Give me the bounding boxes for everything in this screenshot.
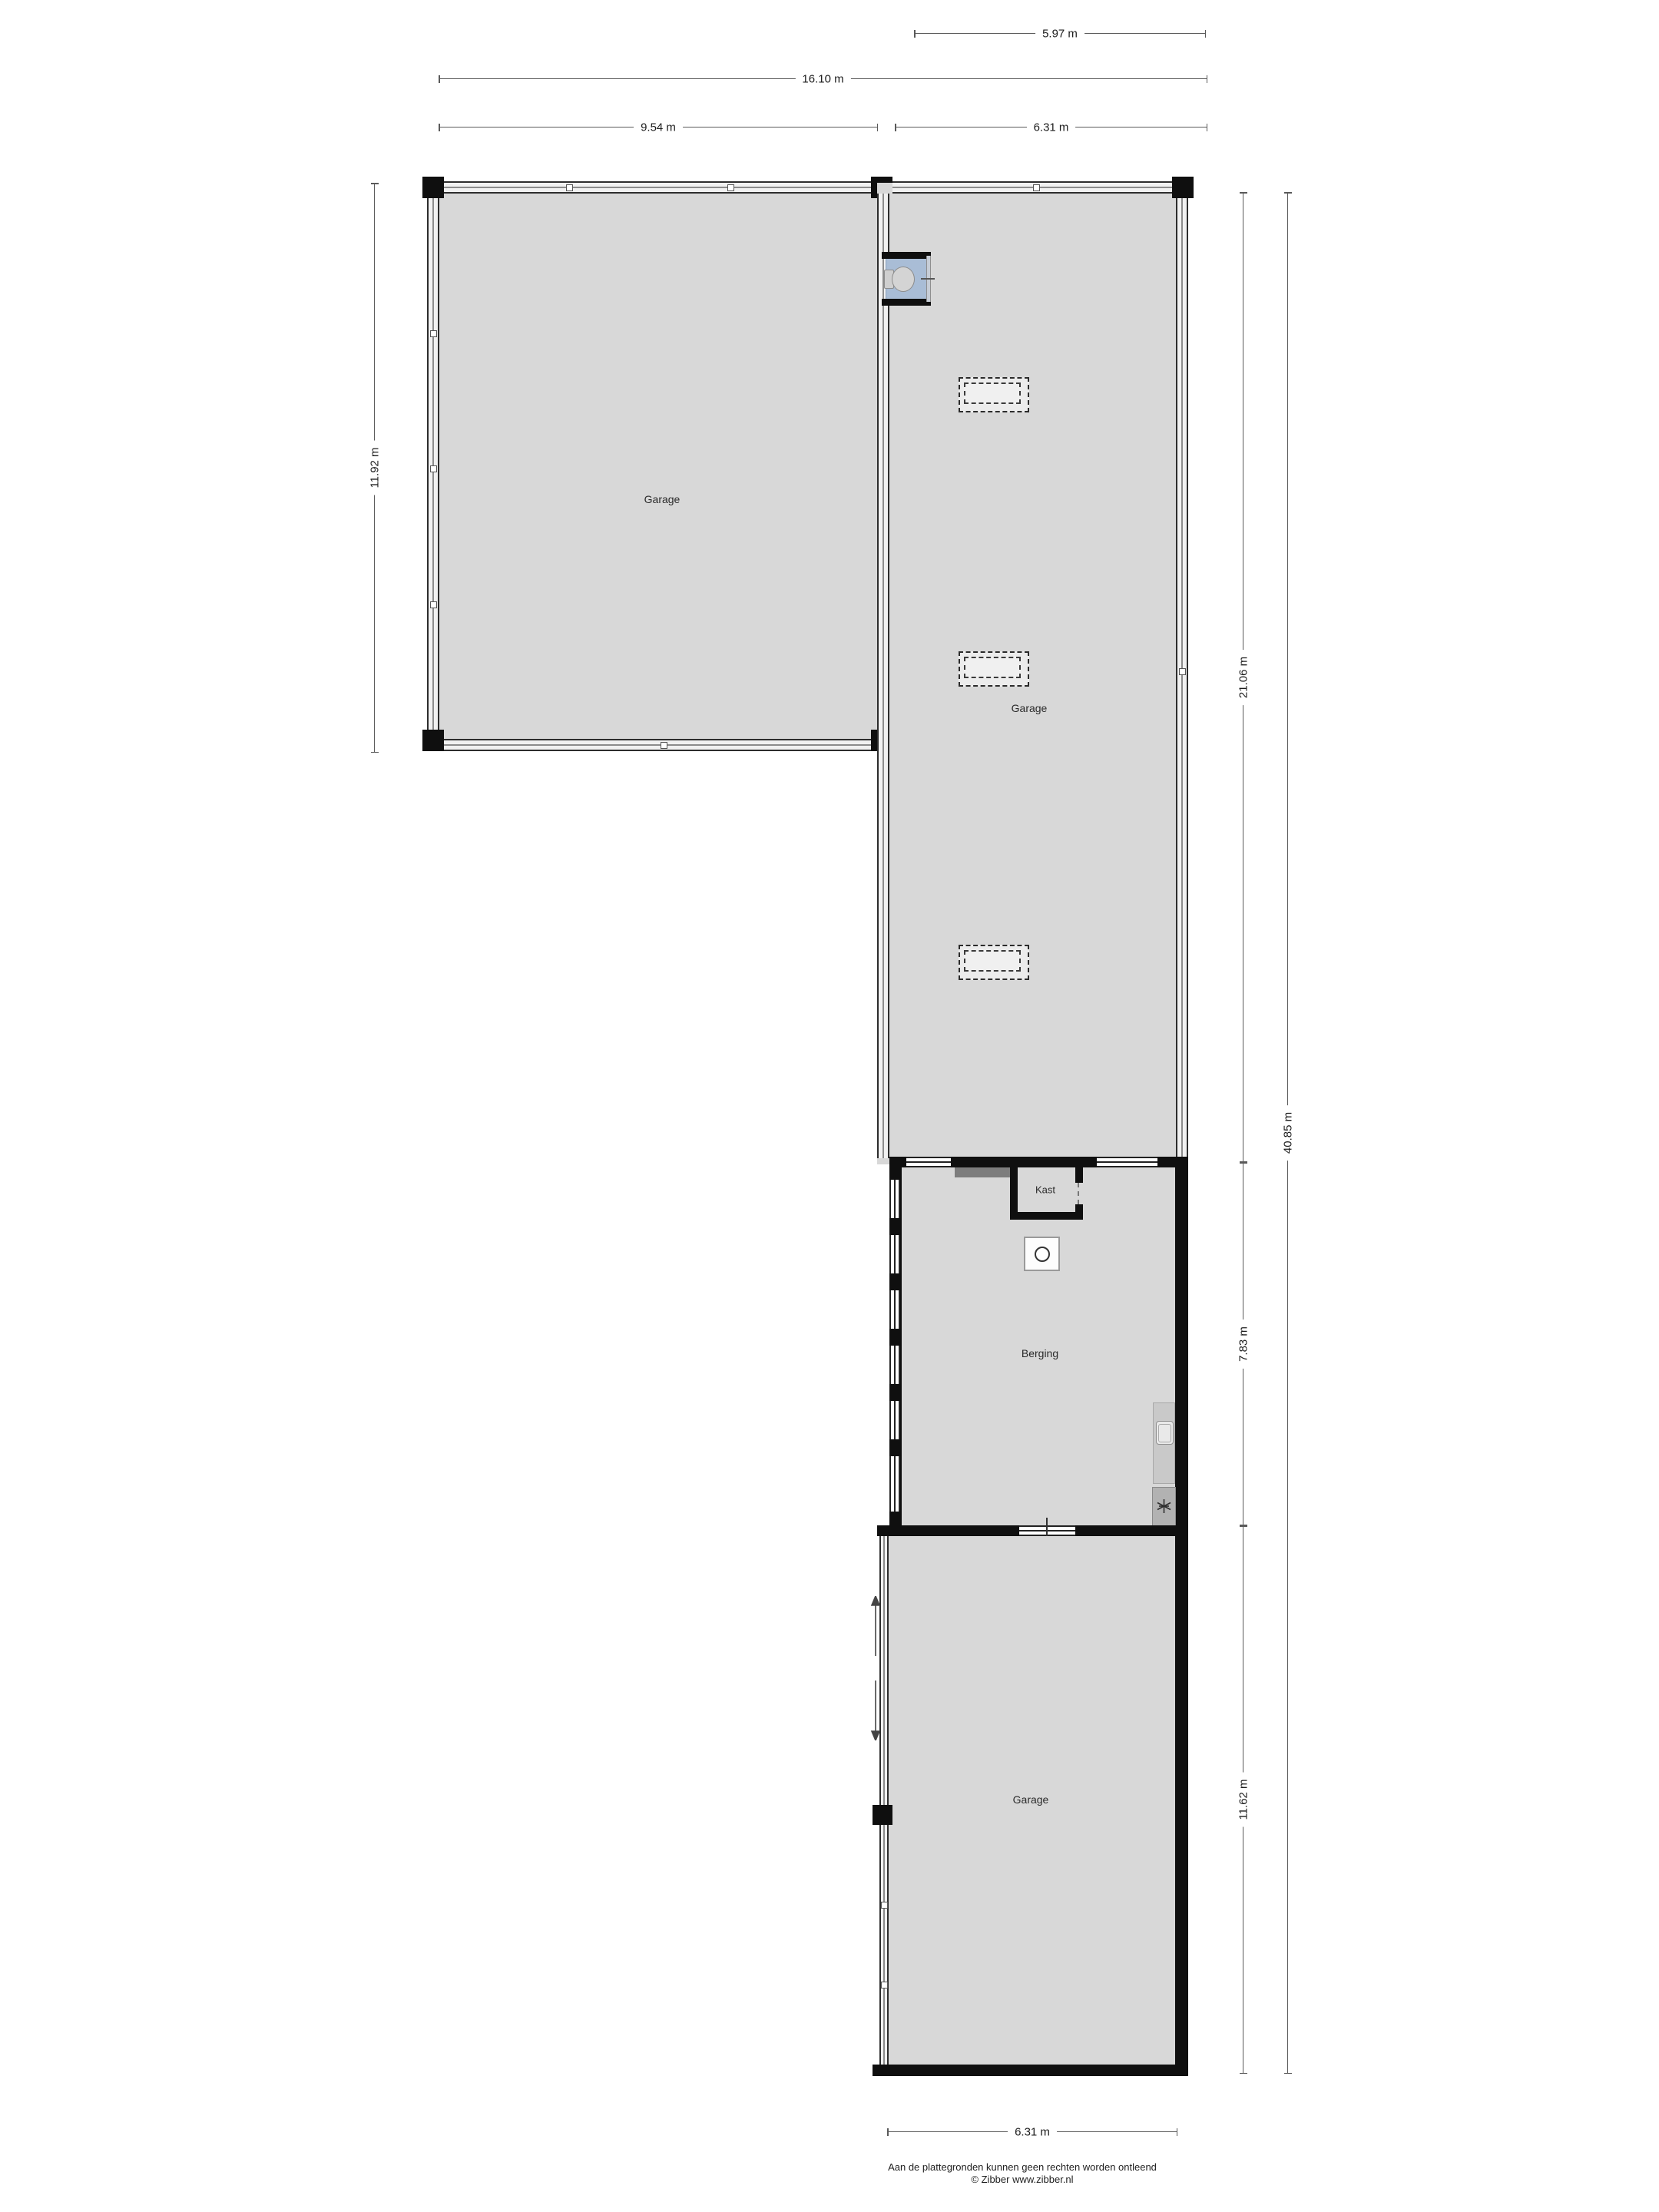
dim-right-4085: 40.85 m bbox=[1287, 192, 1288, 2074]
dim-top-597: 5.97 m bbox=[914, 33, 1206, 34]
window-mullion bbox=[430, 601, 437, 608]
skylight-icon bbox=[959, 377, 1029, 412]
toilet-icon bbox=[892, 267, 915, 292]
wall-kast-west bbox=[1010, 1157, 1018, 1220]
room-garage-middle bbox=[877, 183, 1184, 1164]
dim-label: 5.97 m bbox=[1035, 28, 1084, 41]
wall-garage-bottom-south bbox=[873, 2065, 1188, 2076]
fridge bbox=[1152, 1487, 1176, 1526]
boiler-icon bbox=[1024, 1237, 1060, 1271]
wall-garage-middle-east bbox=[1176, 198, 1188, 1158]
wall-kast-east bbox=[1075, 1204, 1083, 1220]
wall-garage-bottom-east bbox=[1175, 1536, 1188, 2074]
window-mullion bbox=[430, 330, 437, 337]
window-mullion bbox=[881, 1982, 888, 1988]
toilet-wall bbox=[882, 299, 931, 306]
window-berging-top-right bbox=[1096, 1157, 1157, 1167]
room-label-garage-left: Garage bbox=[644, 493, 680, 505]
dim-left-1192: 11.92 m bbox=[374, 183, 375, 753]
window-mullion bbox=[727, 184, 734, 191]
room-label-berging: Berging bbox=[1022, 1347, 1058, 1359]
skylight-icon bbox=[959, 945, 1029, 980]
dim-label: 11.92 m bbox=[369, 440, 382, 495]
dim-right-1162: 11.62 m bbox=[1243, 1525, 1243, 2074]
dim-bottom-631: 6.31 m bbox=[887, 2131, 1177, 2132]
window-mullion bbox=[566, 184, 573, 191]
footer-copyright: © Zibber www.zibber.nl bbox=[888, 2174, 1157, 2186]
window-berging-west bbox=[889, 1180, 900, 1218]
dim-top-954: 9.54 m bbox=[439, 127, 878, 127]
dim-label: 16.10 m bbox=[795, 73, 850, 86]
dim-label: 40.85 m bbox=[1282, 1105, 1295, 1161]
window-mullion bbox=[881, 1902, 888, 1909]
floor-plan-page: Garage Garage Kast bbox=[0, 0, 1659, 2212]
dim-label: 6.31 m bbox=[1027, 121, 1076, 134]
window-mullion bbox=[661, 742, 667, 749]
skylight-icon bbox=[959, 651, 1029, 687]
footer: Aan de plattegronden kunnen geen rechten… bbox=[888, 2161, 1157, 2185]
room-garage-left bbox=[429, 183, 888, 751]
dim-right-783: 7.83 m bbox=[1243, 1162, 1243, 1525]
window-mullion bbox=[1033, 184, 1040, 191]
window-berging-west bbox=[889, 1235, 900, 1273]
window-berging-west bbox=[889, 1346, 900, 1384]
wall-corner bbox=[422, 177, 444, 198]
dim-label: 11.62 m bbox=[1237, 1772, 1250, 1826]
room-label-garage-middle: Garage bbox=[1012, 702, 1048, 714]
wall-kast-east bbox=[1075, 1157, 1083, 1183]
dim-top-631: 6.31 m bbox=[895, 127, 1207, 127]
snowflake-icon bbox=[1153, 1488, 1175, 1525]
toilet-tick bbox=[921, 278, 935, 280]
room-label-kast: Kast bbox=[1035, 1184, 1055, 1196]
wall-garage-middle-west bbox=[877, 194, 889, 1158]
sliding-door-double-arrow-icon bbox=[866, 1596, 885, 1740]
kast-shelf bbox=[955, 1167, 1010, 1177]
kitchenette-sink bbox=[1156, 1421, 1174, 1445]
wall-garage-left-top bbox=[427, 181, 889, 194]
dim-right-2106: 21.06 m bbox=[1243, 192, 1243, 1162]
wall-garage-left-bottom bbox=[427, 739, 889, 751]
room-label-garage-bottom: Garage bbox=[1013, 1793, 1049, 1806]
window-berging-west bbox=[889, 1401, 900, 1439]
dim-label: 21.06 m bbox=[1237, 649, 1250, 704]
wall-kast-bottom bbox=[1010, 1212, 1083, 1220]
dim-label: 6.31 m bbox=[1008, 2126, 1057, 2139]
kast-door-opening bbox=[1078, 1183, 1079, 1204]
window-mullion bbox=[1179, 668, 1186, 675]
wall-berging-east bbox=[1175, 1157, 1188, 1536]
wall-corner bbox=[422, 730, 444, 751]
window-berging-west bbox=[889, 1456, 900, 1512]
dim-label: 7.83 m bbox=[1237, 1320, 1250, 1369]
dim-label: 9.54 m bbox=[634, 121, 683, 134]
toilet-wall bbox=[882, 252, 931, 259]
window-mullion bbox=[430, 465, 437, 472]
window-berging-west bbox=[889, 1290, 900, 1329]
wall-corner bbox=[1172, 177, 1194, 198]
dim-top-1610: 16.10 m bbox=[439, 78, 1207, 79]
wall-pier bbox=[873, 1805, 892, 1825]
footer-disclaimer: Aan de plattegronden kunnen geen rechten… bbox=[888, 2161, 1157, 2174]
window-berging-top-left bbox=[906, 1157, 951, 1167]
